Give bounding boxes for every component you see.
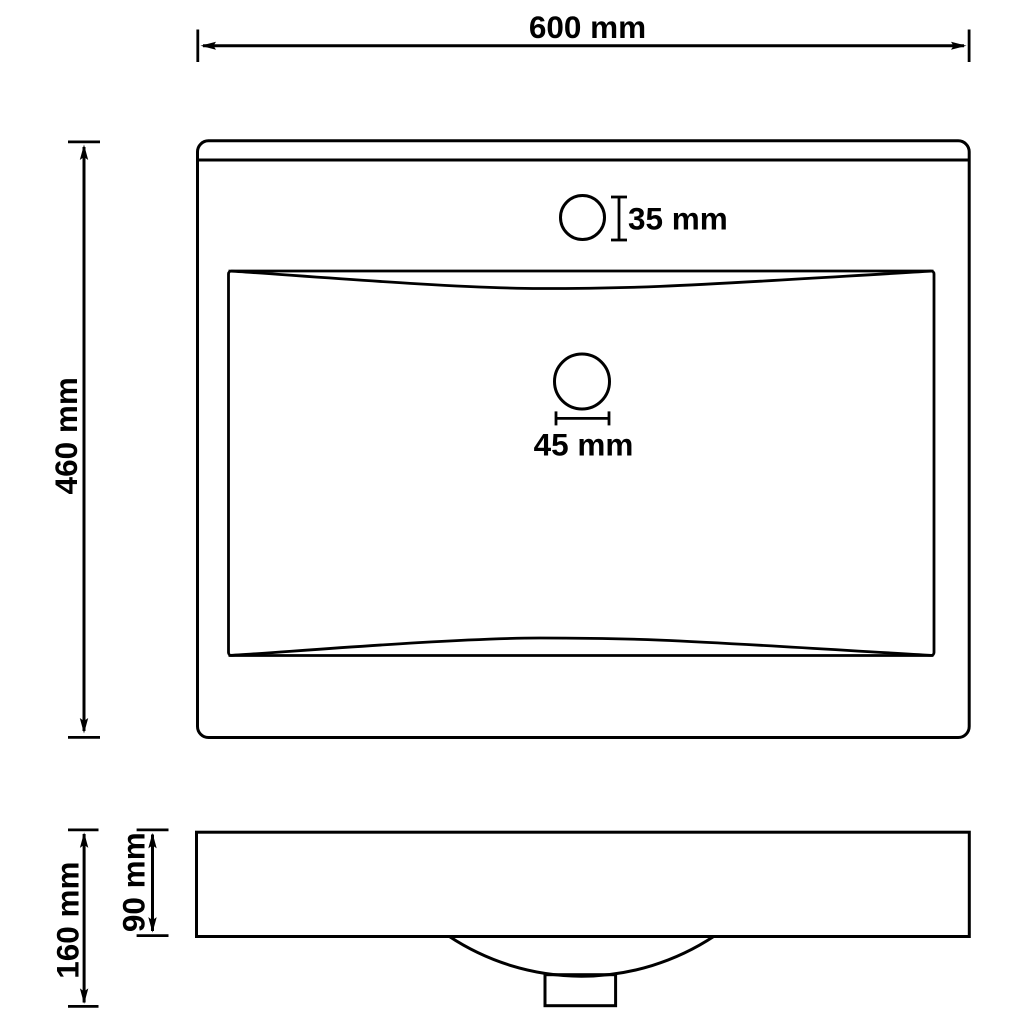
svg-text:90 mm: 90 mm [115,832,151,932]
svg-text:45 mm: 45 mm [534,427,634,463]
svg-text:160 mm: 160 mm [49,861,85,978]
svg-text:600 mm: 600 mm [529,9,646,45]
svg-text:460 mm: 460 mm [48,377,84,494]
svg-text:35 mm: 35 mm [628,201,728,237]
